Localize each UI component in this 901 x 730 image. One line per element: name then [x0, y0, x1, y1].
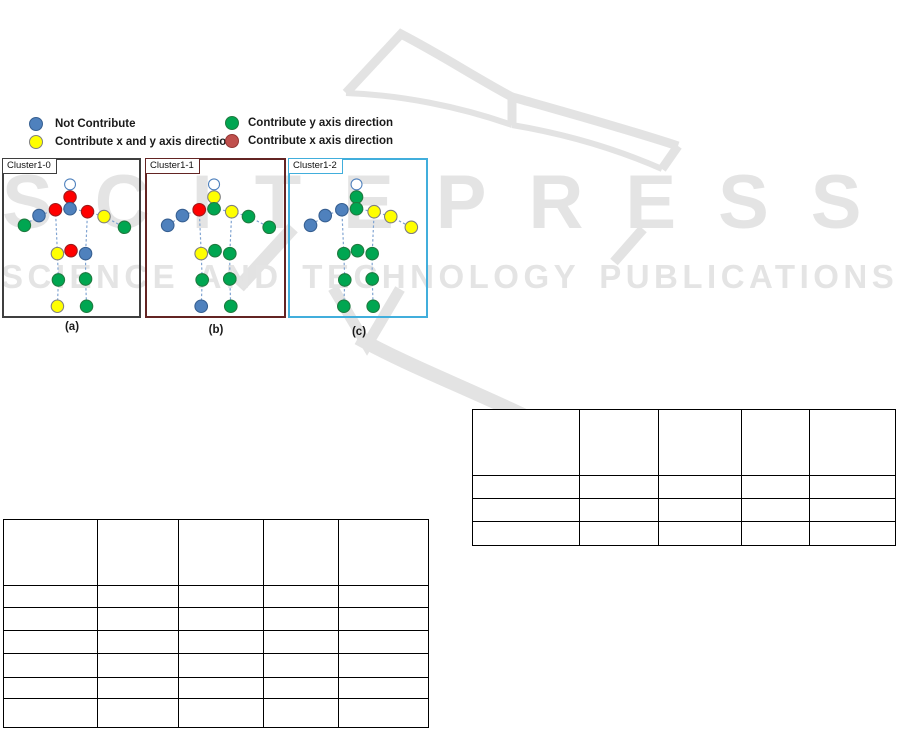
table-cell: [98, 608, 179, 631]
table-cell: [473, 522, 580, 546]
skeleton-joint-lhand: [18, 219, 30, 231]
skeleton-joint-lhand: [161, 219, 174, 231]
table-cell: [179, 678, 264, 699]
table-cell: [339, 631, 429, 654]
cluster-box: Cluster1-1: [145, 158, 286, 318]
table-cell: [98, 586, 179, 608]
table-cell: [4, 654, 98, 678]
skeleton-joint-rknee: [366, 273, 379, 285]
table-cell: [264, 654, 339, 678]
table-cell: [580, 522, 659, 546]
skeleton-joint-rsho: [225, 205, 238, 217]
table-cell: [473, 410, 580, 476]
paper-page: SCITEPRESS SCIENCE AND TECHNOLOGY PUBLIC…: [0, 0, 901, 730]
table-row: [473, 476, 896, 499]
skeleton-joint-neck: [64, 191, 76, 203]
cluster-label: Cluster1-1: [145, 158, 200, 174]
skeleton-joint-relb: [385, 210, 398, 222]
table-cell: [659, 522, 742, 546]
table-cell: [264, 631, 339, 654]
skeleton-joint-rfoot: [224, 300, 237, 312]
skeleton-joint-lhip: [338, 247, 351, 259]
table-cell: [339, 520, 429, 586]
skeleton-joint-lelb: [319, 209, 332, 221]
right-table: [472, 409, 896, 546]
table-cell: [473, 499, 580, 522]
skeleton-joint-lhip: [51, 247, 63, 259]
cluster-box: Cluster1-0: [2, 158, 141, 318]
cluster-box: Cluster1-2: [288, 158, 428, 318]
skeleton-joint-lfoot: [338, 300, 351, 312]
table-cell: [179, 631, 264, 654]
table-cell: [742, 476, 810, 499]
subfigure-caption: (a): [50, 321, 94, 333]
table-row: [4, 699, 429, 728]
table-cell: [742, 410, 810, 476]
legend-color-dot-icon: [29, 117, 43, 131]
skeleton-joint-rhip: [79, 247, 91, 259]
skeleton-joint-lsho: [193, 203, 206, 215]
legend-color-dot-icon: [29, 135, 43, 149]
skeleton-joint-rfoot: [367, 300, 380, 312]
table-cell: [98, 654, 179, 678]
skeleton-joint-lhand: [304, 219, 317, 231]
cluster-label: Cluster1-2: [288, 158, 343, 174]
table-cell: [659, 499, 742, 522]
skeleton-joint-mhip: [209, 244, 222, 256]
table-cell: [4, 520, 98, 586]
table-row: [4, 678, 429, 699]
table-cell: [339, 586, 429, 608]
skeleton-joint-lfoot: [195, 300, 208, 312]
skeleton-joint-lknee: [196, 274, 209, 286]
skeleton-figure: [4, 160, 139, 316]
skeleton-joint-head: [65, 179, 76, 190]
table-row: [4, 631, 429, 654]
cluster-label: Cluster1-0: [2, 158, 57, 174]
table-cell: [810, 410, 896, 476]
skeleton-joint-rhip: [366, 247, 379, 259]
skeleton-joint-mhip: [65, 244, 77, 256]
table-cell: [98, 678, 179, 699]
skeleton-joint-lsho: [336, 203, 349, 215]
table-cell: [264, 699, 339, 728]
table-cell: [4, 586, 98, 608]
table-cell: [264, 586, 339, 608]
legend-item-label: Not Contribute: [55, 117, 135, 131]
legend-color-dot-icon: [225, 134, 239, 148]
table-cell: [264, 608, 339, 631]
skeleton-joint-chest: [350, 203, 363, 215]
skeleton-joint-rsho: [81, 205, 93, 217]
table-cell: [580, 499, 659, 522]
table-cell: [810, 476, 896, 499]
table-cell: [742, 499, 810, 522]
table-cell: [742, 522, 810, 546]
table-row: [473, 410, 896, 476]
table-cell: [179, 654, 264, 678]
skeleton-joint-neck: [208, 191, 221, 203]
skeleton-joint-head: [351, 179, 362, 190]
table-cell: [4, 678, 98, 699]
left-table: [3, 519, 429, 728]
skeleton-joint-rfoot: [80, 300, 92, 312]
skeleton-joint-relb: [98, 210, 110, 222]
skeleton-joint-lknee: [52, 274, 64, 286]
table-cell: [4, 699, 98, 728]
skeleton-joint-lelb: [33, 209, 45, 221]
skeleton-joint-lhip: [195, 247, 208, 259]
table-cell: [339, 608, 429, 631]
table-cell: [339, 654, 429, 678]
table-cell: [659, 410, 742, 476]
skeleton-joint-relb: [242, 210, 255, 222]
table-cell: [179, 586, 264, 608]
table-row: [4, 654, 429, 678]
skeleton-joint-lelb: [176, 209, 189, 221]
table-row: [4, 608, 429, 631]
table-row: [473, 522, 896, 546]
skeleton-joint-neck: [350, 191, 363, 203]
skeleton-joint-rsho: [368, 205, 381, 217]
skeleton-joint-rhand: [118, 221, 130, 233]
skeleton-joint-lknee: [339, 274, 352, 286]
legend-item-label: Contribute y axis direction: [248, 116, 393, 130]
skeleton-joint-rknee: [223, 273, 236, 285]
table-cell: [473, 476, 580, 499]
legend-item-label: Contribute x and y axis direction: [55, 135, 233, 149]
table-cell: [4, 608, 98, 631]
subfigure-caption: (b): [194, 324, 238, 336]
skeleton-joint-rknee: [79, 273, 91, 285]
skeleton-figure: [290, 160, 426, 316]
table-cell: [810, 522, 896, 546]
skeleton-joint-lfoot: [51, 300, 63, 312]
table-cell: [179, 699, 264, 728]
skeleton-joint-rhand: [405, 221, 418, 233]
table-cell: [580, 476, 659, 499]
table-cell: [264, 678, 339, 699]
table-row: [473, 499, 896, 522]
skeleton-joint-chest: [64, 203, 76, 215]
table-cell: [98, 631, 179, 654]
skeleton-joint-mhip: [351, 244, 364, 256]
skeleton-joint-lsho: [49, 203, 61, 215]
legend-color-dot-icon: [225, 116, 239, 130]
table-cell: [4, 631, 98, 654]
skeleton-joint-head: [209, 179, 220, 190]
table-cell: [264, 520, 339, 586]
table-cell: [339, 699, 429, 728]
skeleton-joint-rhip: [223, 247, 236, 259]
skeleton-joint-rhand: [263, 221, 276, 233]
table-cell: [580, 410, 659, 476]
table-row: [4, 520, 429, 586]
table-cell: [339, 678, 429, 699]
subfigure-caption: (c): [337, 326, 381, 338]
skeleton-figure: [147, 160, 284, 316]
table-cell: [179, 608, 264, 631]
table-cell: [659, 476, 742, 499]
skeleton-joint-chest: [208, 203, 221, 215]
table-row: [4, 586, 429, 608]
legend-item-label: Contribute x axis direction: [248, 134, 393, 148]
table-cell: [810, 499, 896, 522]
table-cell: [179, 520, 264, 586]
table-cell: [98, 699, 179, 728]
table-cell: [98, 520, 179, 586]
